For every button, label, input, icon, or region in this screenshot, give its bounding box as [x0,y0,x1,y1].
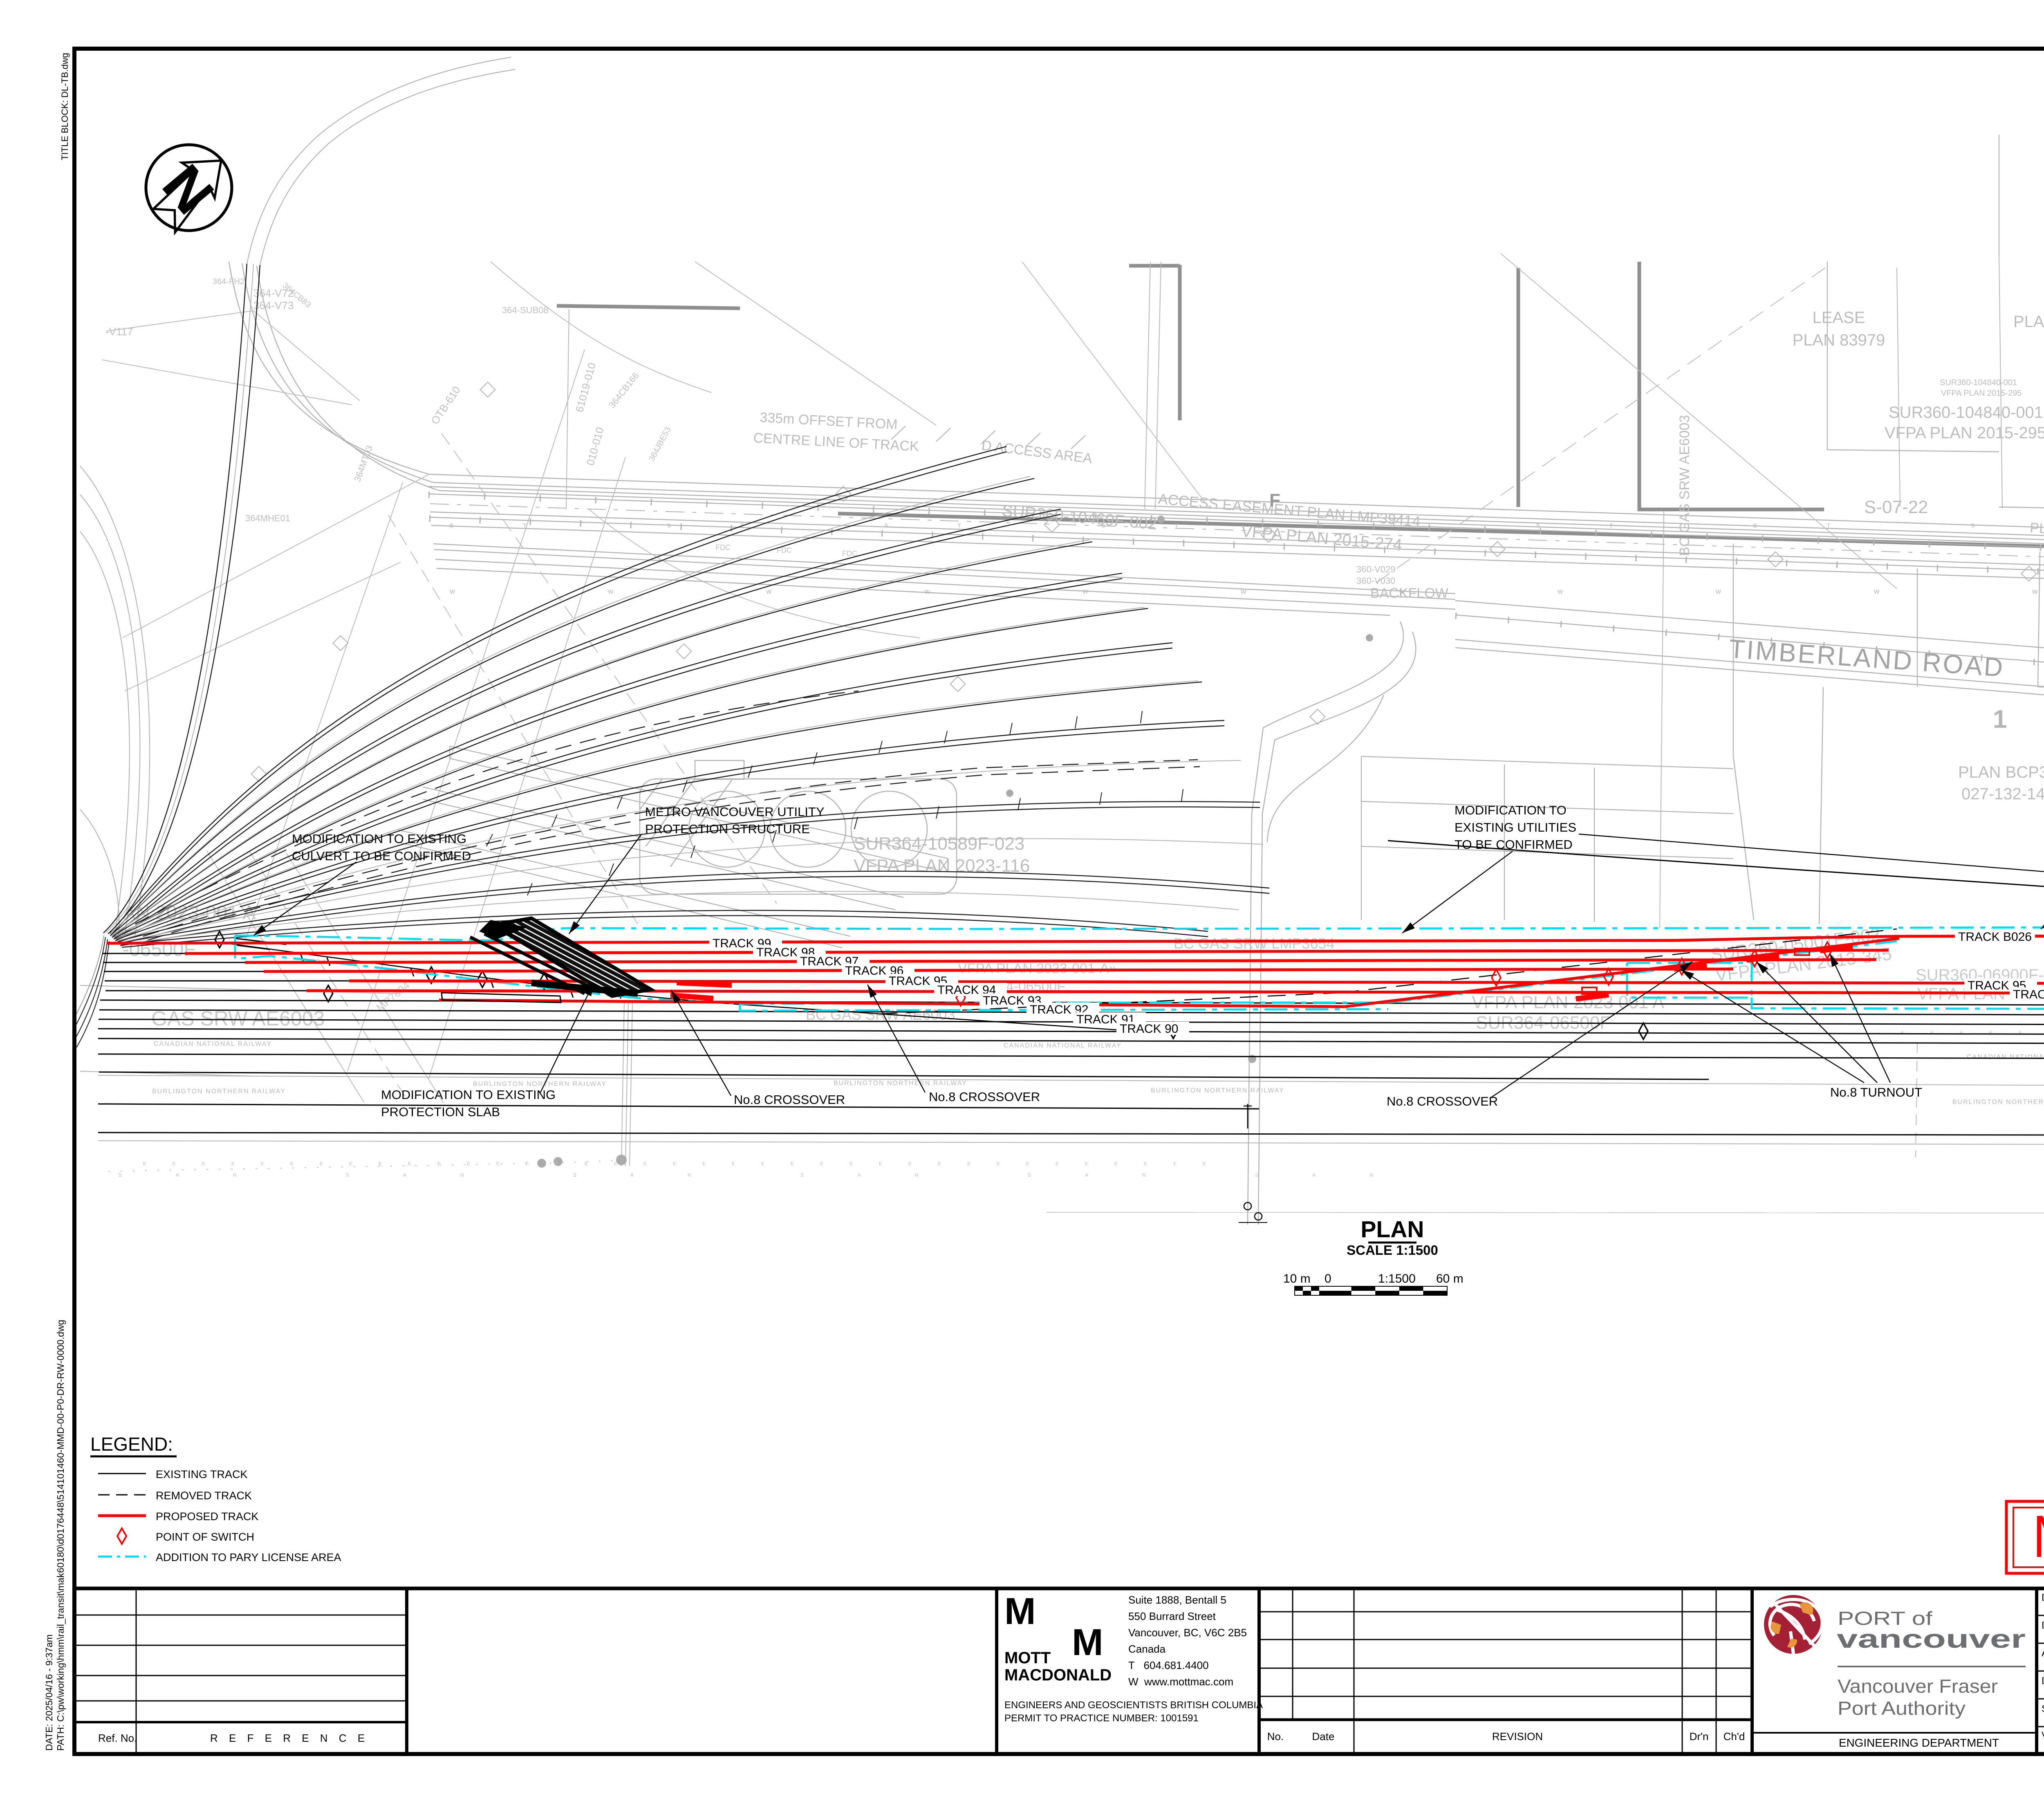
svg-text:VFPA PLAN 2015-295: VFPA PLAN 2015-295 [1885,424,2044,442]
svg-text:VFPA PLAN 2015-295: VFPA PLAN 2015-295 [1941,389,2022,398]
svg-text:LEGEND:: LEGEND: [90,1433,173,1455]
svg-text:W www.mottmac.com: W www.mottmac.com [1128,1676,1233,1688]
svg-text:PLAN: PLAN [1360,1216,1424,1243]
svg-text:No.: No. [1267,1730,1284,1743]
svg-text:CANADIAN NATIONAL RAILWAY: CANADIAN NATIONAL RAILWAY [1004,1042,1122,1049]
svg-text:Ref. No.: Ref. No. [98,1732,137,1744]
svg-text:ENGINEERS AND GEOSCIENTISTS BR: ENGINEERS AND GEOSCIENTISTS BRITISH COLU… [1004,1700,1263,1711]
svg-text:Port Authority: Port Authority [1838,1698,1966,1719]
svg-text:REVISION: REVISION [1492,1730,1543,1743]
svg-text:Date: Date [1312,1730,1335,1743]
svg-text:TRACK B026: TRACK B026 [1958,930,2032,944]
svg-text:VFPA SITE: VFPA SITE [2042,1730,2044,1741]
svg-text:POINT OF SWITCH: POINT OF SWITCH [156,1531,254,1543]
svg-text:BC GAS SRW LMP3654: BC GAS SRW LMP3654 [1174,935,1335,952]
svg-text:VFPA PLAN 2023-001-A»: VFPA PLAN 2023-001-A» [958,961,1117,976]
svg-text:ST ST ST ST ST ST ST ST ST ST: ST ST ST ST ST ST ST ST ST ST ST ST ST S… [450,522,2044,529]
svg-text:R E F E R E N C E: R E F E R E N C E [210,1732,369,1744]
svg-text:PLAN 83979: PLAN 83979 [1793,331,1885,349]
svg-text:TRACK 90: TRACK 90 [1120,1022,1178,1036]
svg-text:360-V029: 360-V029 [1356,564,1395,574]
svg-text:LEASE: LEASE [1813,309,1865,327]
svg-text:ADDITION TO PARY LICENSE AREA: ADDITION TO PARY LICENSE AREA [156,1551,341,1563]
svg-text:360-V030: 360-V030 [1356,576,1395,586]
svg-text:364-FH2: 364-FH2 [213,277,244,286]
svg-text:W W W W W W W W W W W W W W W: W W W W W W W W W W W W W W W W W W W W … [450,588,2044,595]
svg-text:Canada: Canada [1128,1643,1166,1655]
svg-text:M: M [1072,1622,1103,1663]
svg-text:No.8 CROSSOVER: No.8 CROSSOVER [734,1092,845,1107]
svg-text:T 604.681.4400: T 604.681.4400 [1128,1659,1209,1671]
svg-text:NOT FOR CONSTRUCTION: NOT FOR CONSTRUCTION [2033,1503,2044,1570]
svg-text:DRAWN BY: DRAWN BY [2042,1620,2044,1631]
svg-text:SCALE: SCALE [2042,1703,2044,1714]
svg-text:No.8 CROSSOVER: No.8 CROSSOVER [1387,1094,1498,1108]
svg-text:PROPOSED TRACK: PROPOSED TRACK [156,1510,259,1523]
svg-text:PROTECTION STRUCTURE: PROTECTION STRUCTURE [645,822,810,836]
svg-text:BURLINGTON NORTHERN RAILWAY: BURLINGTON NORTHERN RAILWAY [834,1080,967,1087]
svg-text:364-V73: 364-V73 [253,299,294,312]
svg-text:PROTECTION SLAB: PROTECTION SLAB [381,1105,500,1119]
svg-text:60 m: 60 m [1436,1272,1464,1285]
svg-text:DATE: DATE [2042,1676,2044,1687]
svg-text:BURLINGTON NORTHERN RAILWAY: BURLINGTON NORTHERN RAILWAY [152,1088,286,1095]
svg-text:vancouver: vancouver [1837,1625,2026,1653]
svg-text:MODIFICATION TO: MODIFICATION TO [1455,803,1567,817]
svg-text:REMOVED TRACK: REMOVED TRACK [156,1489,252,1502]
svg-text:VFPA PLAN 2023 001 A: VFPA PLAN 2023 001 A [1472,992,1665,1012]
svg-text:APPROVED: APPROVED [2042,1648,2044,1659]
svg-text:No.8 TURNOUT: No.8 TURNOUT [1830,1085,1922,1099]
svg-text:FDC: FDC [715,543,731,552]
svg-text:Vancouver Fraser: Vancouver Fraser [1838,1676,1998,1697]
svg-text:027-132-145: 027-132-145 [1961,785,2044,803]
svg-text:EXISTING UTILITIES: EXISTING UTILITIES [1455,820,1576,834]
svg-text:CANADIAN NATIONAL RAILWAY: CANADIAN NATIONAL RAILWAY [1967,1054,2044,1061]
svg-text:MODIFICATION TO EXISTING: MODIFICATION TO EXISTING [292,832,466,846]
svg-text:SUR360-104840-001: SUR360-104840-001 [1889,404,2043,422]
svg-text:ENGINEERING DEPARTMENT: ENGINEERING DEPARTMENT [1839,1736,1999,1749]
svg-text:SUR360-104840-001: SUR360-104840-001 [1940,378,2017,387]
svg-text:CANADIAN NATIONAL RAILWAY: CANADIAN NATIONAL RAILWAY [154,1041,272,1048]
svg-text:TITLE BLOCK: DL-TB.dwg: TITLE BLOCK: DL-TB.dwg [60,53,70,160]
svg-text:MOTT: MOTT [1004,1649,1051,1667]
svg-text:PATH: C:\pw\working\hmm\rail_t: PATH: C:\pw\working\hmm\rail_transit\mak… [55,1320,66,1751]
svg-text:PERMIT TO PRACTICE NUMBER: 100: PERMIT TO PRACTICE NUMBER: 1001591 [1004,1713,1199,1724]
svg-text:0: 0 [1325,1272,1331,1285]
svg-text:BC GAS SRW AE6003: BC GAS SRW AE6003 [1677,415,1692,556]
svg-text:EXISTING TRACK: EXISTING TRACK [156,1468,248,1480]
svg-text:-V117: -V117 [105,325,133,338]
svg-text:1: 1 [1993,705,2007,734]
svg-text:MACDONALD: MACDONALD [1004,1666,1112,1684]
svg-text:No.8 CROSSOVER: No.8 CROSSOVER [929,1090,1040,1104]
svg-text:MODIFICATION TO EXISTING: MODIFICATION TO EXISTING [381,1088,556,1102]
svg-text:364-SUB08: 364-SUB08 [502,305,549,315]
svg-text:M: M [1004,1590,1036,1632]
svg-text:SAN SAN SAN SAN SAN SAN: SAN SAN SAN SAN SAN SAN [119,1172,1427,1178]
svg-text:PLAN BCP31356: PLAN BCP31356 [1958,763,2044,781]
svg-text:TO BE CONFIRMED: TO BE CONFIRMED [1455,837,1573,852]
svg-text:BURLINGTON NORTHERN RAILWAY: BURLINGTON NORTHERN RAILWAY [1952,1099,2044,1106]
svg-text:TRACK 94: TRACK 94 [2013,988,2044,1001]
svg-text:10 m: 10 m [1283,1272,1311,1285]
svg-text:EEEEEEEEEEEEEEEEEEEEEEEEEEEEEE: EEEEEEEEEEEEEEEEEEEEEEEEEEEEEEEEEEEEE [143,1161,1232,1166]
svg-text:SUR364-10589F-023: SUR364-10589F-023 [854,834,1024,854]
svg-text:BURLINGTON NORTHERN RAILWAY: BURLINGTON NORTHERN RAILWAY [1151,1087,1284,1094]
svg-text:364MHE01: 364MHE01 [245,513,290,523]
svg-text:Dr'n: Dr'n [1690,1730,1709,1743]
svg-text:Suite 1888, Bentall 5: Suite 1888, Bentall 5 [1128,1594,1226,1606]
svg-text:1:1500: 1:1500 [1378,1272,1416,1285]
svg-text:BURLINGTON NORTHERN RAILWAY: BURLINGTON NORTHERN RAILWAY [473,1081,607,1088]
svg-text:Ch'd: Ch'd [1724,1730,1745,1743]
svg-text:CULVERT TO BE CONFIRMED: CULVERT TO BE CONFIRMED [292,849,471,863]
svg-text:SCALE 1:1500: SCALE 1:1500 [1347,1243,1438,1258]
svg-text:DATE: 2025/04/16 - 9:37am: DATE: 2025/04/16 - 9:37am [44,1634,54,1751]
svg-text:550 Burrard Street: 550 Burrard Street [1128,1610,1216,1622]
svg-text:EEEEEEEEEEEEEEEEEEEEEEEEEE: EEEEEEEEEEEEEEEEEEEEEEEEEE [1901,1030,2044,1036]
svg-text:DESIGN BY: DESIGN BY [2042,1592,2044,1603]
svg-text:PLAN: PLAN [2013,313,2044,331]
svg-text:S-07-22: S-07-22 [1864,497,1928,517]
svg-text:METRO VANCOUVER UTILITY: METRO VANCOUVER UTILITY [645,805,825,819]
svg-text:Vancouver, BC, V6C 2B5: Vancouver, BC, V6C 2B5 [1128,1626,1247,1639]
svg-text:F: F [1269,490,1280,510]
